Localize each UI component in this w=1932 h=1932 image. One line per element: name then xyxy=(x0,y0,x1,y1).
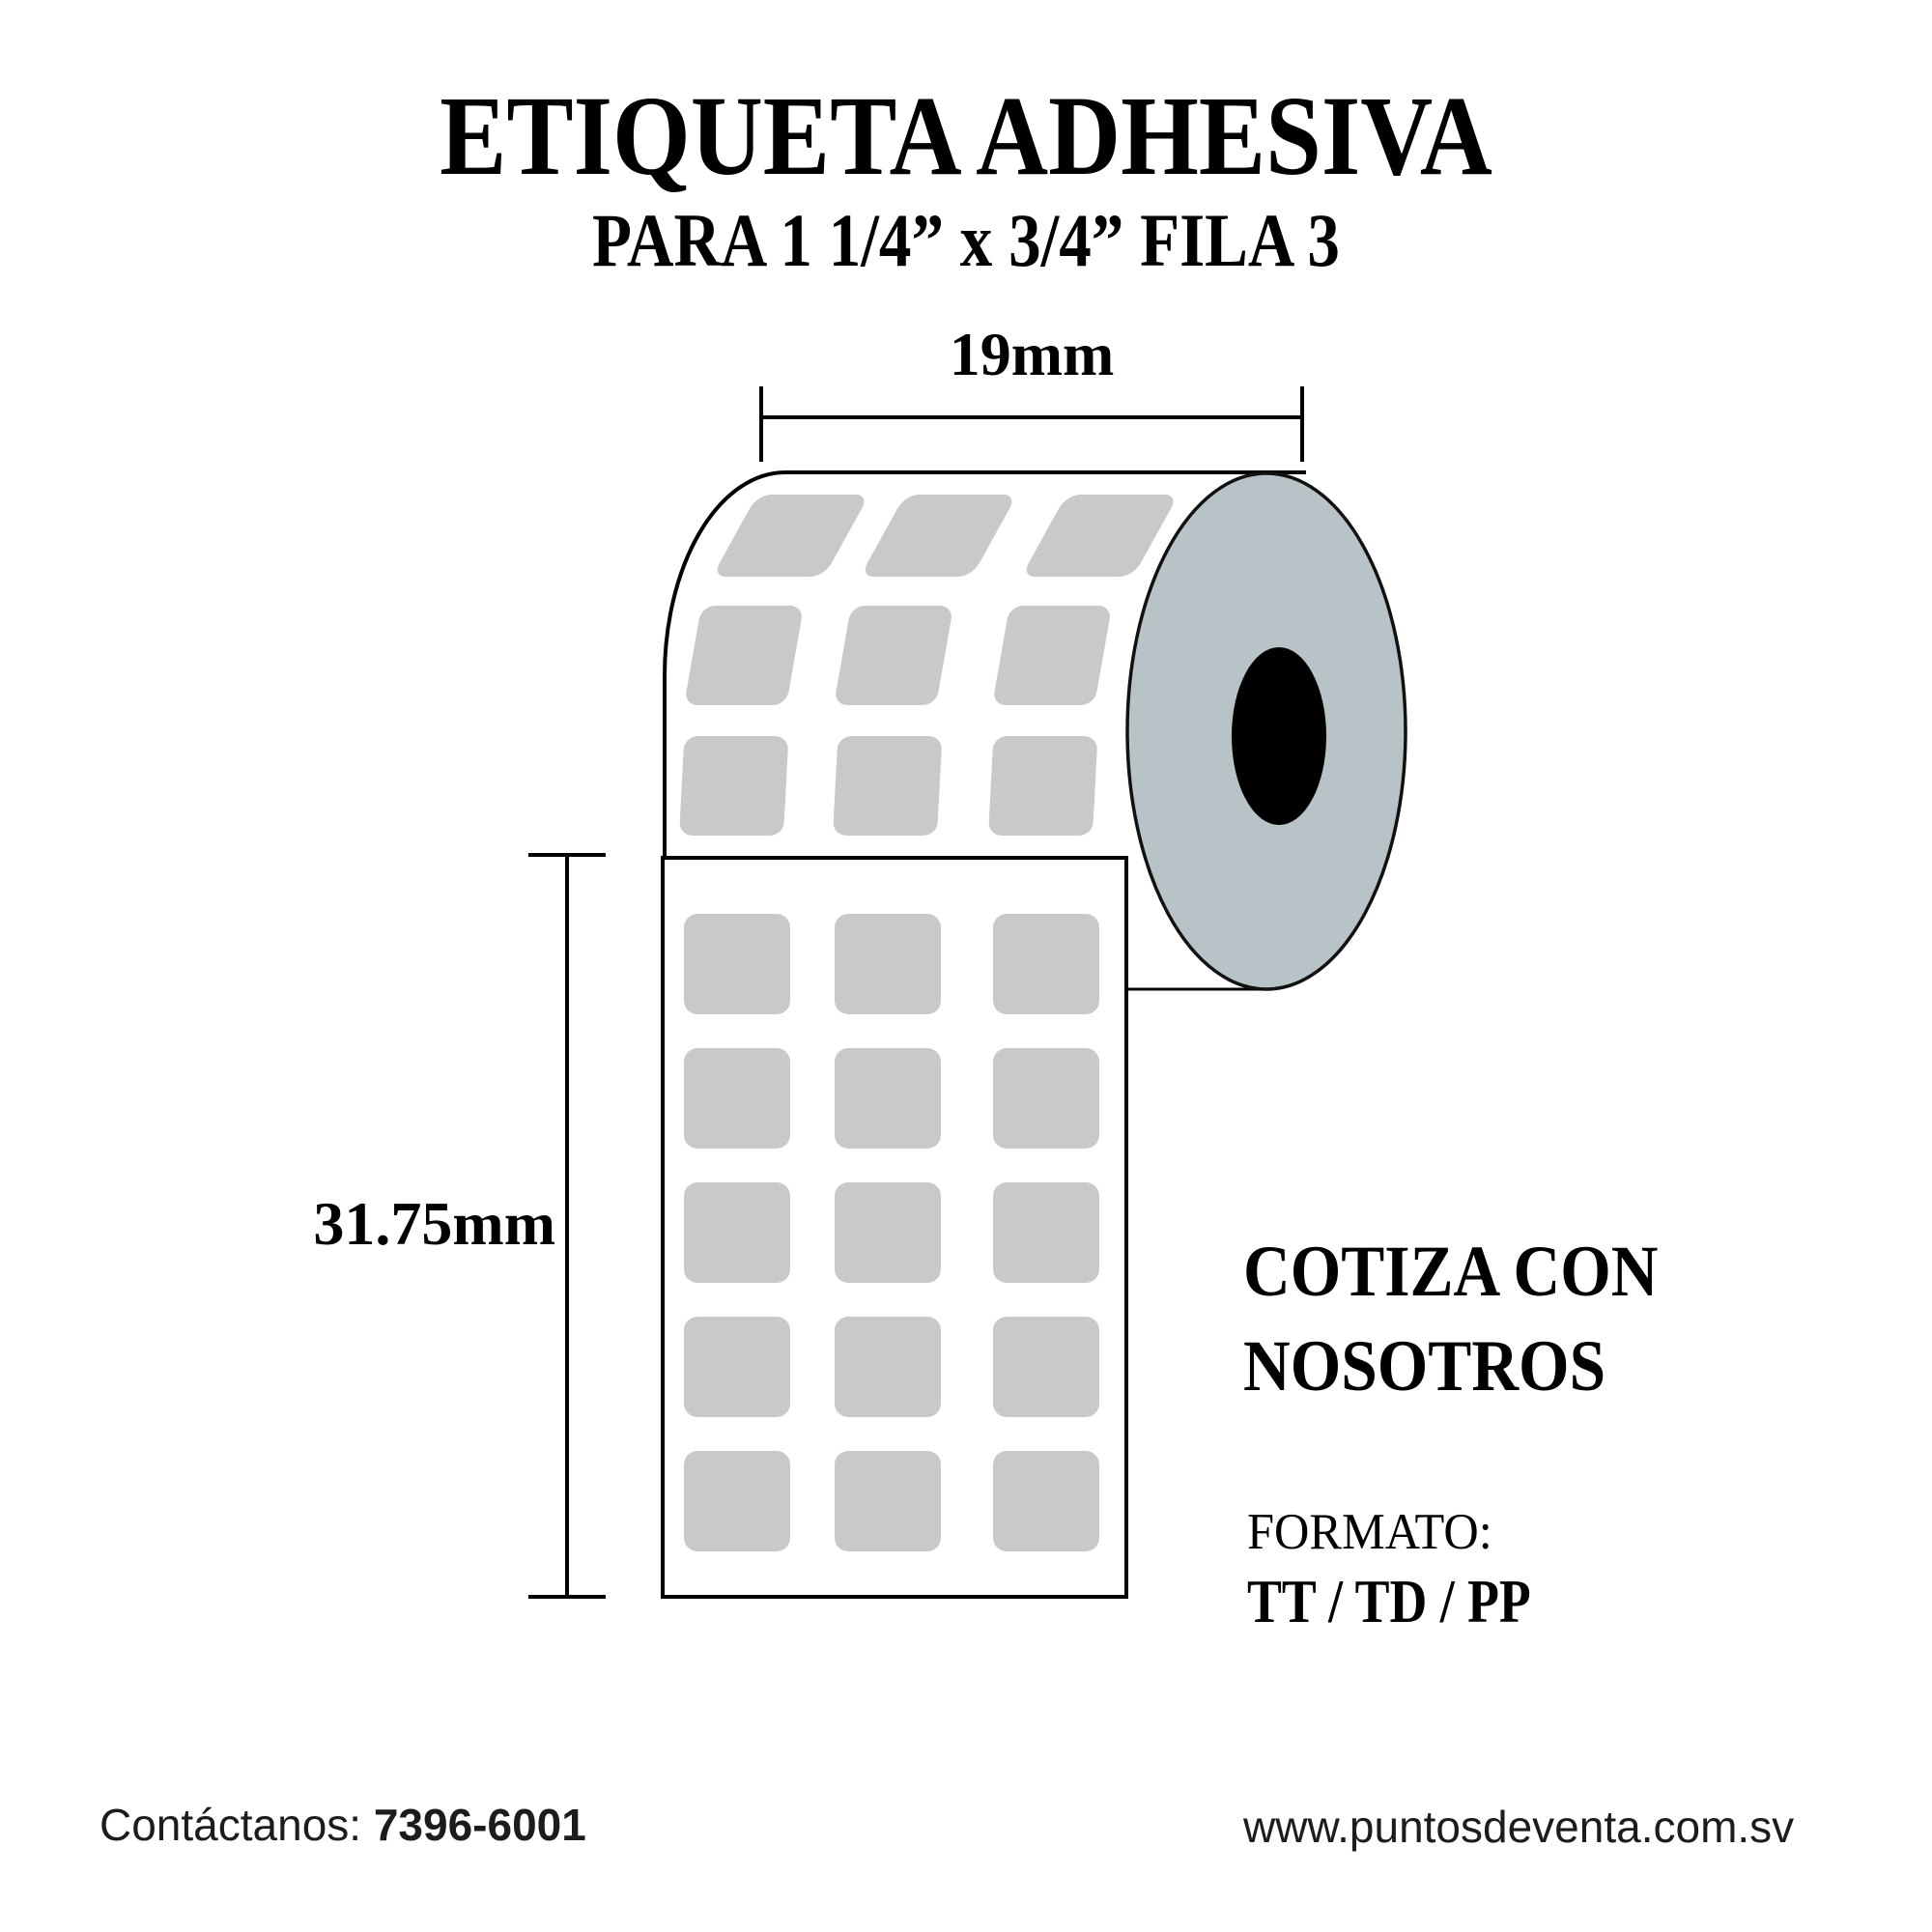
curved-sticker xyxy=(833,736,942,836)
strip-sticker-rows xyxy=(684,914,1099,1551)
format-value: TT / TD / PP xyxy=(1247,1566,1531,1637)
label-sticker xyxy=(684,914,790,1014)
cta-text: COTIZA CON NOSOTROS xyxy=(1243,1225,1658,1413)
label-sticker xyxy=(835,1182,941,1283)
curved-sticker xyxy=(684,606,804,705)
label-sticker xyxy=(993,1451,1099,1551)
curved-sticker xyxy=(679,736,788,836)
label-sticker xyxy=(684,1048,790,1149)
label-sticker xyxy=(684,1182,790,1283)
label-sticker xyxy=(992,606,1112,705)
label-sticker xyxy=(679,736,788,836)
label-sticker xyxy=(712,495,869,577)
height-dimension-label: 31.75mm xyxy=(251,1188,555,1260)
format-label: FORMATO: xyxy=(1247,1503,1492,1561)
poster: ETIQUETA ADHESIVA PARA 1 1/4” x 3/4” FIL… xyxy=(0,0,1932,1932)
label-sticker xyxy=(684,606,804,705)
label-sticker xyxy=(833,736,942,836)
curved-sticker xyxy=(992,606,1112,705)
label-roll-diagram xyxy=(0,0,1932,1932)
label-sticker xyxy=(835,1451,941,1551)
cta-line2: NOSOTROS xyxy=(1243,1320,1658,1414)
contact-number: 7396-6001 xyxy=(374,1800,586,1850)
label-sticker xyxy=(834,606,953,705)
label-sticker xyxy=(684,1317,790,1417)
curved-sticker xyxy=(834,606,953,705)
contact-line: Contáctanos: 7396-6001 xyxy=(99,1799,586,1851)
page-title: ETIQUETA ADHESIVA xyxy=(116,73,1816,199)
page-subtitle: PARA 1 1/4” x 3/4” FILA 3 xyxy=(135,199,1797,282)
width-dimension-label: 19mm xyxy=(906,319,1157,390)
curved-sticker xyxy=(988,736,1097,836)
width-dimension xyxy=(761,386,1302,462)
roll-core xyxy=(1232,647,1326,825)
website-url: www.puntosdeventa.com.sv xyxy=(1243,1801,1794,1853)
curved-sticker xyxy=(712,495,869,577)
label-sticker xyxy=(835,1048,941,1149)
contact-label: Contáctanos: xyxy=(99,1800,361,1850)
label-sticker xyxy=(835,1317,941,1417)
label-sticker xyxy=(835,914,941,1014)
curved-sticker xyxy=(1021,495,1179,577)
label-sticker xyxy=(1021,495,1179,577)
curved-sticker-rows xyxy=(679,495,1179,836)
curved-sticker xyxy=(860,495,1017,577)
label-sticker xyxy=(993,1182,1099,1283)
label-sticker xyxy=(993,1048,1099,1149)
label-sticker xyxy=(993,914,1099,1014)
label-sticker xyxy=(988,736,1097,836)
label-sticker xyxy=(684,1451,790,1551)
label-sticker xyxy=(860,495,1017,577)
cta-line1: COTIZA CON xyxy=(1243,1225,1658,1320)
label-sticker xyxy=(993,1317,1099,1417)
